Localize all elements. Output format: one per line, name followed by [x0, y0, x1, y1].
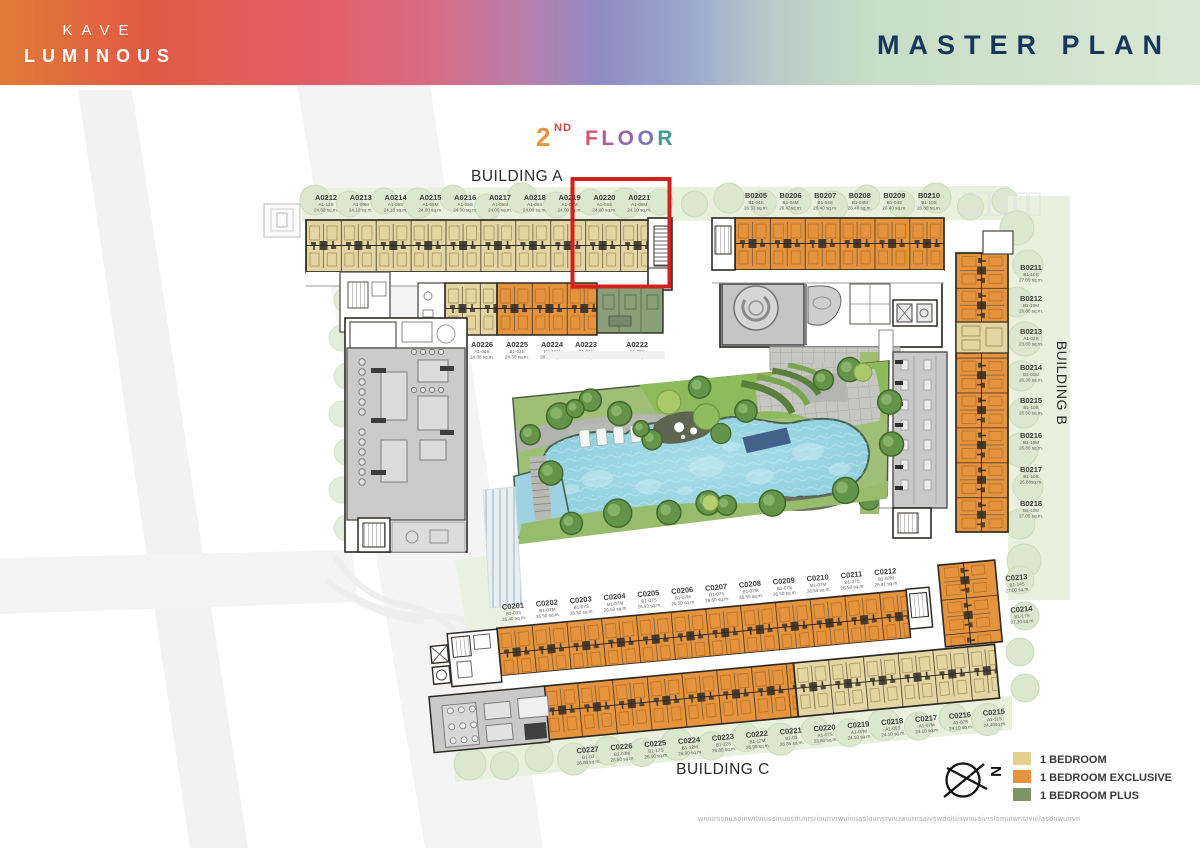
svg-text:1 BEDROOM PLUS: 1 BEDROOM PLUS	[1040, 790, 1139, 802]
svg-text:ND: ND	[554, 122, 572, 134]
svg-text:B0206B1-04M26.43sq.m.: B0206B1-04M26.43sq.m.	[779, 191, 802, 210]
svg-text:2: 2	[536, 122, 550, 152]
svg-text:1 BEDROOM EXCLUSIVE: 1 BEDROOM EXCLUSIVE	[1040, 772, 1172, 784]
svg-text:1 BEDROOM: 1 BEDROOM	[1040, 754, 1107, 766]
svg-text:FLOOR: FLOOR	[585, 127, 676, 150]
svg-text:LUMINOUS: LUMINOUS	[24, 46, 176, 66]
svg-text:BUILDING C: BUILDING C	[676, 761, 770, 778]
svg-text:N: N	[987, 766, 1004, 777]
svg-text:BUILDING A: BUILDING A	[471, 168, 563, 185]
svg-text:KAVE: KAVE	[63, 22, 138, 39]
svg-text:wniurssnuaoinwrlviussinuosdunr: wniurssnuaoinwrlviussinuosdunrsrisunvrwu…	[697, 816, 1080, 823]
svg-text:BUILDING B: BUILDING B	[1054, 341, 1070, 425]
svg-text:MASTER PLAN: MASTER PLAN	[877, 30, 1171, 60]
